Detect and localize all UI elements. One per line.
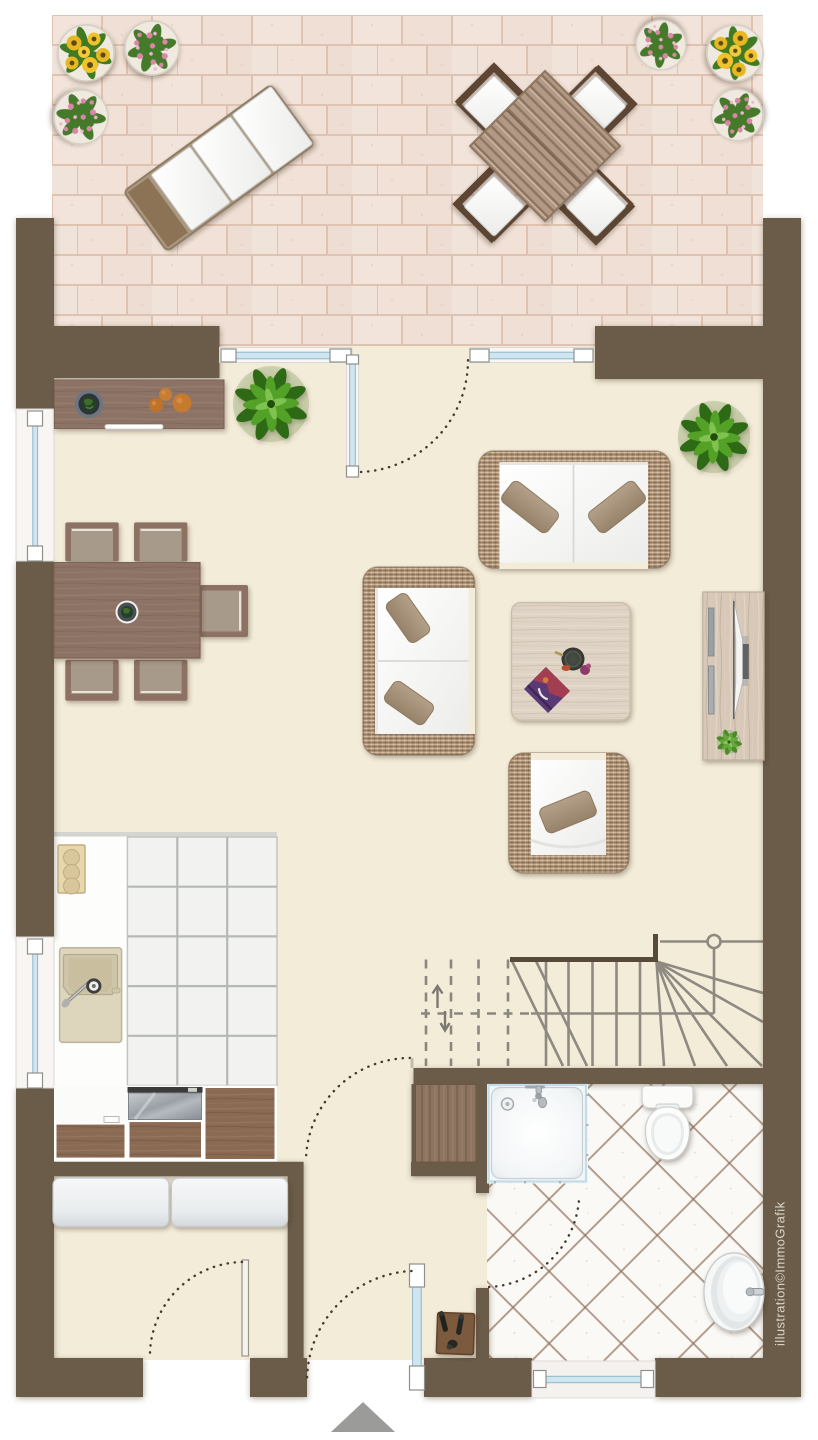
svg-text:illustration©ImmoGrafik: illustration©ImmoGrafik <box>773 1201 788 1346</box>
